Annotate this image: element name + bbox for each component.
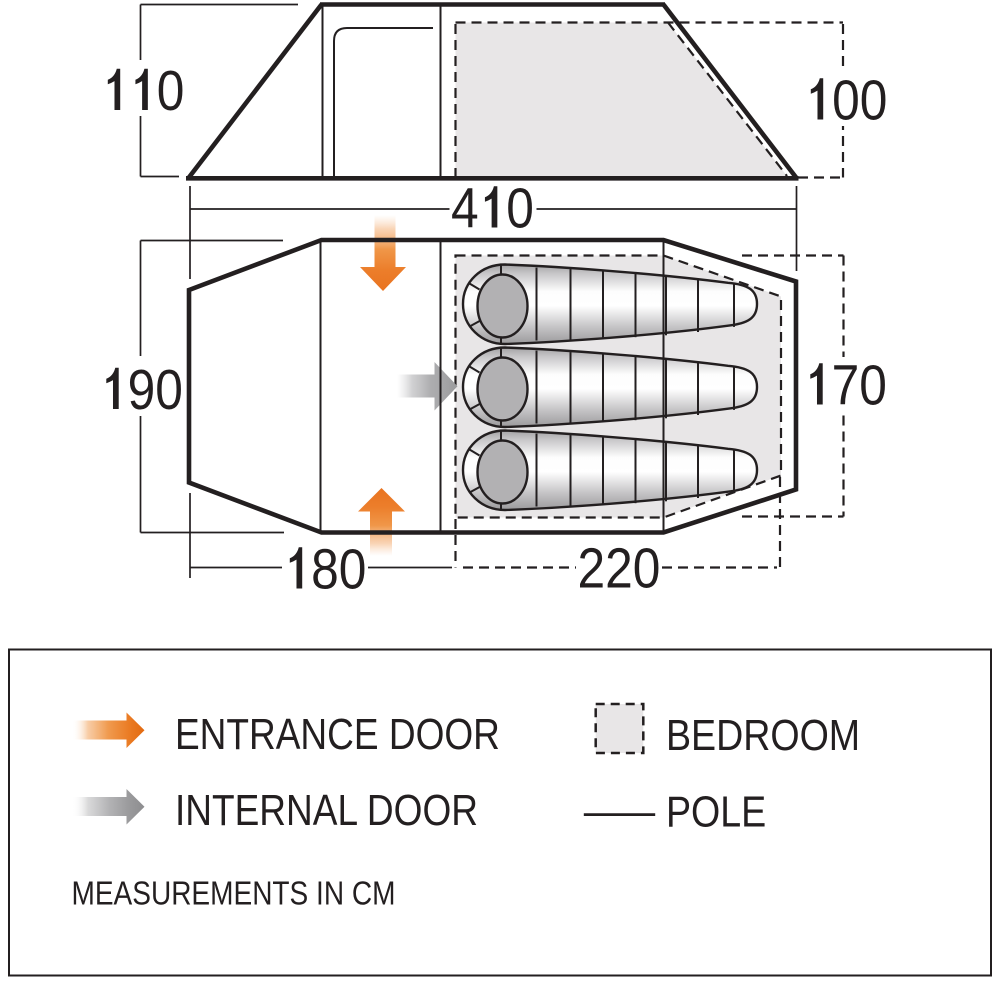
svg-text:0: 0 (860, 70, 888, 133)
svg-text:8: 8 (311, 539, 339, 602)
svg-text:BEDROOM: BEDROOM (666, 710, 860, 759)
svg-text:0: 0 (157, 60, 185, 123)
svg-text:0: 0 (859, 355, 887, 418)
svg-text:0: 0 (155, 359, 183, 422)
svg-text:7: 7 (832, 355, 860, 418)
svg-text:2: 2 (605, 538, 633, 601)
svg-text:0: 0 (832, 70, 860, 133)
svg-text:MEASUREMENTS IN CM: MEASUREMENTS IN CM (72, 876, 396, 913)
svg-text:0: 0 (633, 538, 661, 601)
svg-text:INTERNAL DOOR: INTERNAL DOOR (175, 787, 478, 835)
svg-text:0: 0 (339, 539, 367, 602)
svg-text:POLE: POLE (666, 787, 766, 836)
svg-text:0: 0 (506, 178, 534, 241)
svg-text:4: 4 (451, 178, 479, 241)
svg-text:9: 9 (128, 359, 156, 422)
svg-text:2: 2 (578, 538, 606, 601)
svg-text:ENTRANCE DOOR: ENTRANCE DOOR (175, 710, 500, 758)
